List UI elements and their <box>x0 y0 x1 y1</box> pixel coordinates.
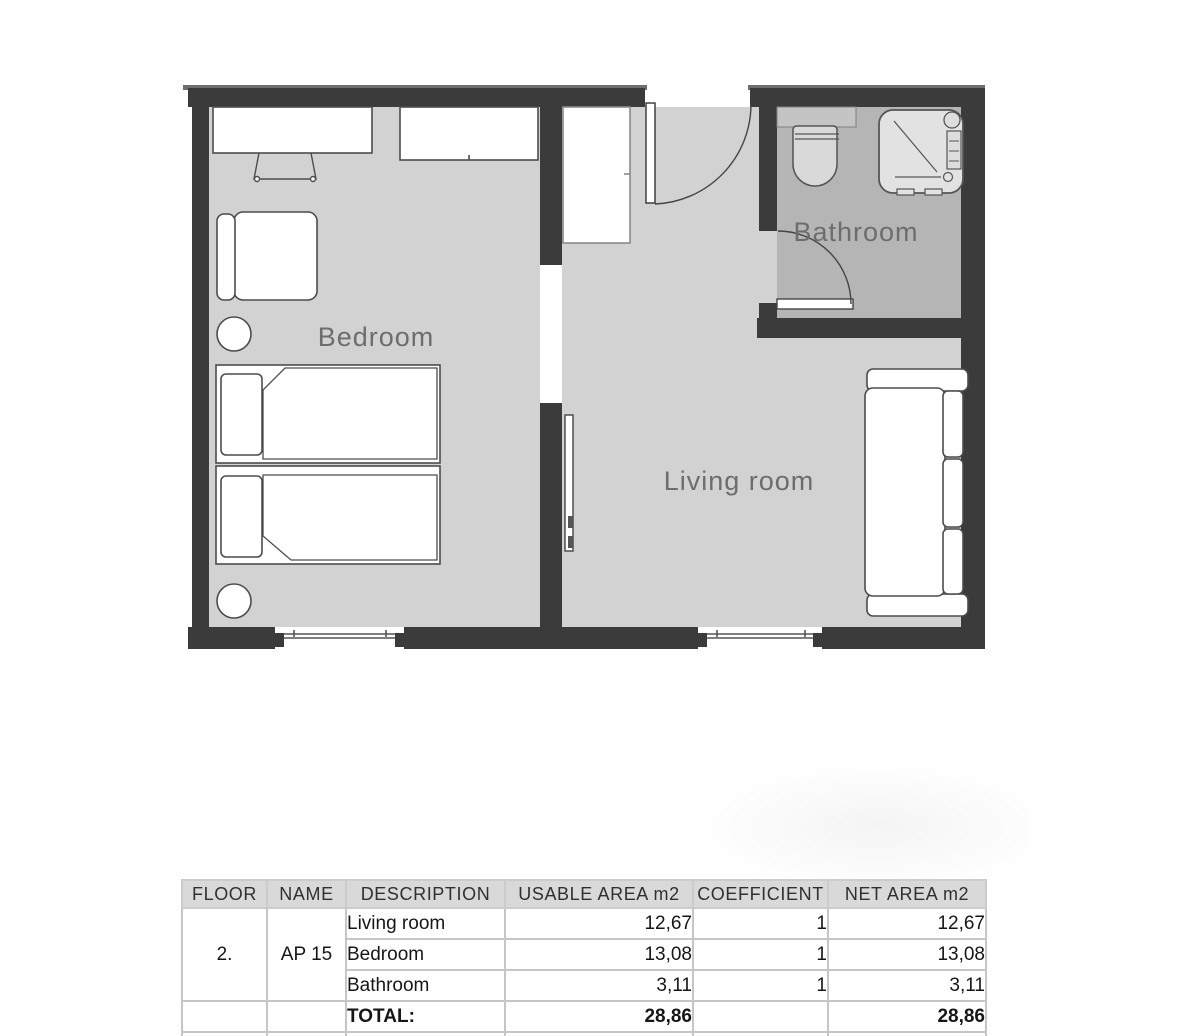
shower-head-icon <box>944 112 960 128</box>
row-coefficient: 1 <box>693 908 828 939</box>
scan-smudge <box>690 762 1030 892</box>
shower <box>879 110 963 195</box>
row-coefficient: 1 <box>693 939 828 970</box>
row-net: 13,08 <box>828 939 986 970</box>
bedroom-window <box>284 630 395 638</box>
hall-wardrobe <box>563 107 630 243</box>
total-name-empty <box>267 1001 346 1032</box>
row-usable: 13,08 <box>505 939 693 970</box>
header-net-area: NET AREA m2 <box>828 880 986 908</box>
table-row: 2. AP 15 Living room 12,67 1 12,67 <box>182 908 986 939</box>
row-net: 3,11 <box>828 970 986 1001</box>
total-net: 28,86 <box>828 1001 986 1032</box>
row-description: Bedroom <box>346 939 505 970</box>
tv <box>565 415 573 551</box>
floor-value: 2. <box>182 908 267 1001</box>
side-table-top <box>217 317 251 351</box>
header-coefficient: COEFFICIENT <box>693 880 828 908</box>
header-name: NAME <box>267 880 346 908</box>
bedroom-wardrobe <box>400 107 538 160</box>
living-room-window <box>707 630 813 638</box>
row-usable: 3,11 <box>505 970 693 1001</box>
desk <box>213 107 372 153</box>
bedroom-label: Bedroom <box>318 322 435 352</box>
page: Bedroom Living room Bathroom FLOOR NAME … <box>0 0 1200 1036</box>
area-table: FLOOR NAME DESCRIPTION USABLE AREA m2 CO… <box>181 879 987 1036</box>
armchair <box>217 212 317 300</box>
table-partial-row <box>182 1032 986 1036</box>
row-usable: 12,67 <box>505 908 693 939</box>
row-coefficient: 1 <box>693 970 828 1001</box>
bathroom-label: Bathroom <box>793 217 918 247</box>
total-usable: 28,86 <box>505 1001 693 1032</box>
header-floor: FLOOR <box>182 880 267 908</box>
sofa <box>865 369 968 616</box>
total-floor-empty <box>182 1001 267 1032</box>
row-description: Bathroom <box>346 970 505 1001</box>
bed-1 <box>216 365 440 463</box>
table-header-row: FLOOR NAME DESCRIPTION USABLE AREA m2 CO… <box>182 880 986 908</box>
table-total-row: TOTAL: 28,86 28,86 <box>182 1001 986 1032</box>
side-table-bottom <box>217 584 251 618</box>
living-room-label: Living room <box>664 466 815 496</box>
total-coefficient-empty <box>693 1001 828 1032</box>
row-description: Living room <box>346 908 505 939</box>
header-description: DESCRIPTION <box>346 880 505 908</box>
header-usable-area: USABLE AREA m2 <box>505 880 693 908</box>
bed-2 <box>216 466 440 564</box>
row-net: 12,67 <box>828 908 986 939</box>
name-value: AP 15 <box>267 908 346 1001</box>
bedroom-doorway <box>540 265 562 403</box>
total-label: TOTAL: <box>346 1001 505 1032</box>
